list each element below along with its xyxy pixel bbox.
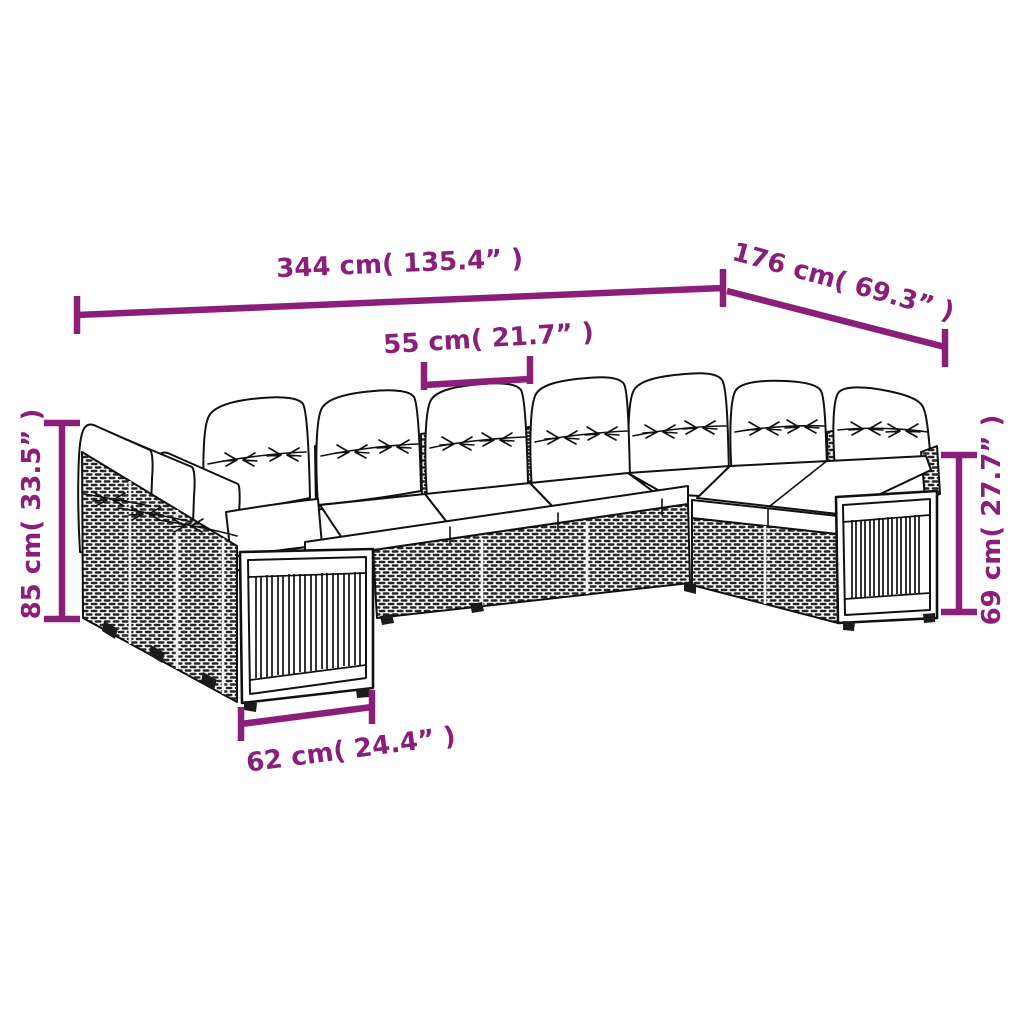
- dimension-label-total-width: 344 cm( 135.4” ): [276, 244, 524, 284]
- sofa-illustration: [78, 373, 940, 712]
- diagram-canvas: 344 cm( 135.4” ) 176 cm( 69.3” ) 55 cm( …: [0, 0, 1024, 1024]
- dimension-left-end-width: 62 cm( 24.4” ): [241, 690, 457, 779]
- dimension-back-height: 85 cm( 33.5” ): [17, 409, 80, 620]
- dimension-label-total-depth: 176 cm( 69.3” ): [729, 237, 958, 327]
- dimension-line: [941, 455, 977, 612]
- left-end-wood-panel: [240, 549, 373, 703]
- back-pillow: [530, 377, 630, 490]
- right-end-wood-panel: [836, 491, 937, 623]
- dimension-label-seat-width: 55 cm( 21.7” ): [382, 318, 594, 361]
- dimension-label-arm-height: 69 cm( 27.7” ): [977, 415, 1007, 626]
- dimension-label-left-end-width: 62 cm( 24.4” ): [244, 721, 457, 778]
- dimension-total-depth: 176 cm( 69.3” ): [727, 237, 957, 367]
- dimension-total-width: 344 cm( 135.4” ): [77, 244, 723, 334]
- dimension-line: [44, 423, 80, 619]
- dimension-arm-height: 69 cm( 27.7” ): [941, 415, 1007, 626]
- dimension-label-back-height: 85 cm( 33.5” ): [17, 409, 47, 620]
- sofa-dimension-diagram: 344 cm( 135.4” ) 176 cm( 69.3” ) 55 cm( …: [0, 0, 1024, 1024]
- dimension-seat-width: 55 cm( 21.7” ): [382, 318, 594, 390]
